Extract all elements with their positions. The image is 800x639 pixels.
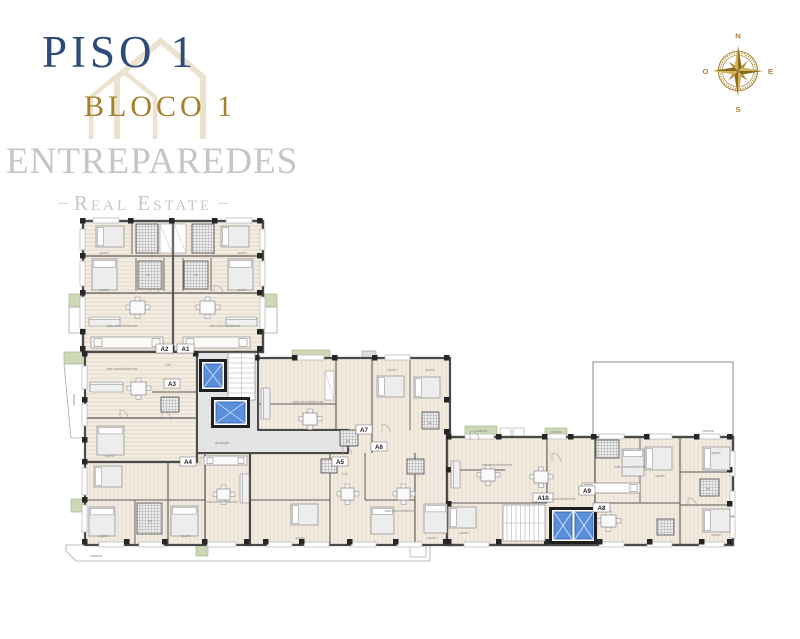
furniture-table [481,469,495,481]
chair [136,395,141,400]
pillar [257,253,263,259]
furniture-table [303,413,317,425]
window [647,434,672,439]
room-label: sala comum/kitchenet [210,324,241,328]
pillar [727,501,733,507]
room-label: hall [166,363,171,367]
bed-pillow [98,228,104,246]
bed-pillow [91,509,114,515]
window [226,218,252,223]
pillar [568,434,574,440]
window [82,366,87,389]
chair [215,305,220,310]
pillar [128,218,134,224]
bed-pillow [624,451,643,457]
window [260,297,265,329]
bed-pillow [426,506,446,512]
chair [401,500,406,505]
pillar [80,329,86,335]
pillar [82,497,88,503]
pillar [496,434,502,440]
pillar [647,539,653,545]
room-label: sala comum/kitchenet [293,400,324,404]
window [599,434,624,439]
room-label: quarto [98,534,107,538]
window [385,355,410,360]
window [545,434,566,439]
pillar [496,539,502,545]
room-label: varanda [475,429,487,433]
chair [146,386,151,391]
bed-pillow [416,379,422,397]
chair [308,425,313,430]
window [260,229,265,250]
pillar [212,218,218,224]
bed-pillow [230,261,252,268]
chair [495,473,500,478]
furniture-table [131,382,146,395]
furniture-sofa [451,461,460,488]
chair [606,527,611,532]
bathroom-tiles [340,430,358,446]
pillar [80,346,86,352]
room-label: quarto [711,533,720,537]
pillar [82,437,88,443]
furniture-table [130,301,145,314]
room-label: varanda [550,430,562,434]
room-label: quarto [655,474,664,478]
window [82,404,87,426]
bed-pillow [705,449,711,469]
pillar [727,539,733,545]
window [599,542,624,547]
room-label: sala comum/kitchenet [545,497,576,501]
pillar [644,434,650,440]
pillar [82,459,88,465]
floorplan-page: PISO 1 BLOCO 1 ENTREPAREDES Real Estate [0,0,800,639]
bed-pillow [379,378,385,396]
room-label: quarto [295,536,304,540]
bathroom-tiles [657,519,674,535]
pillar [80,290,86,296]
chair [548,475,553,480]
room-label: quarto [181,534,190,538]
window [207,542,236,547]
bed-pillow [705,511,711,531]
chair [230,492,235,497]
window [93,218,119,223]
room-label: wc [146,273,150,277]
room-label: wc [428,421,432,425]
room-label: wc [194,273,198,277]
window [82,505,87,532]
chair [616,519,621,524]
room-label: quarto [105,454,114,458]
window [295,355,324,360]
pillar [162,539,168,545]
pillar [169,218,175,224]
window [267,542,292,547]
pillar [727,434,733,440]
furniture-sofa [261,388,270,419]
balcony-green [64,352,85,364]
unit-label-a4: A4 [184,459,192,466]
window [730,517,735,538]
room-label: hall [343,472,348,476]
pillar [444,429,450,435]
furniture-sofa [240,474,249,503]
chair [539,483,544,488]
chair [135,314,140,319]
chair [486,481,491,486]
pillar [263,539,269,545]
ac-unit-box [500,428,511,437]
pillar [542,434,548,440]
room-label: varanda [72,394,76,406]
room-label: wc [148,519,152,523]
room-label: varanda [90,554,102,558]
pillar [257,329,263,335]
bathroom-tiles [192,224,214,253]
pillar [446,434,452,440]
room-label: quarto [237,288,246,292]
room-label: quarto [711,451,720,455]
pillar [244,539,250,545]
ac-unit-box [410,546,426,557]
window [464,542,489,547]
window [304,542,329,547]
window [260,261,265,286]
furniture-table [534,471,548,483]
bed-pillow [451,509,457,527]
pillar [372,355,378,361]
chair [145,305,150,310]
room-label: quarto [459,531,468,535]
room-label: quarto [99,288,108,292]
pillar [257,346,263,352]
pillar [292,355,298,361]
room-label: sala comum/kitchenet [615,465,646,469]
chair [317,417,322,422]
pillar [444,397,450,403]
window [80,229,85,250]
unit-label-a9: A9 [583,488,591,495]
window [697,434,720,439]
balcony-green [264,294,277,307]
window [397,542,422,547]
pillar [444,355,450,361]
room-label: sala comum/kitchenet [107,367,138,371]
room-label: quarto [427,536,436,540]
pillar [124,539,130,545]
pillar [80,253,86,259]
floor-plan: A2 A1 A3 A4 A5 A6 A7 A8 A9 A10 sala comu… [0,0,800,639]
pillar [82,351,88,357]
room-label: sala comum/kitchenet [107,324,138,328]
unit-label-a1: A1 [182,346,190,353]
room-label: quarto [99,251,108,255]
pillar [597,539,603,545]
furniture-table [601,515,616,527]
room-label: sala comum/kitchenet [385,509,416,513]
bed-pillow [647,449,653,469]
chair [205,314,210,319]
furniture-sofa [90,382,123,392]
room-label: varanda [702,429,714,433]
chair [345,500,350,505]
unit-label-a6: A6 [375,444,383,451]
window [139,542,164,547]
bathroom-tiles [407,459,424,474]
room-label: sala comum/kitchenet [482,463,513,467]
pillar [80,218,86,224]
bathroom-tiles [161,397,179,412]
window [80,261,85,286]
bed-pillow [173,508,197,515]
chair [410,492,415,497]
window [82,468,87,495]
bed-pillow [223,228,229,246]
furniture-table [217,489,230,500]
pillar [202,539,208,545]
pillar [257,218,263,224]
pillar [699,539,705,545]
balcony [264,307,277,333]
bed-pillow [96,468,102,486]
pillar [257,290,263,296]
pillar [694,434,700,440]
bathroom-tiles [596,440,619,458]
room-label: quarto [387,368,396,372]
unit-label-a7: A7 [360,427,368,434]
furniture-table [200,301,215,314]
pillar [82,397,88,403]
bed-pillow [293,506,299,524]
bed-pillow [94,261,116,268]
window [80,297,85,329]
pillar [446,467,452,473]
room-label: circulação [215,441,230,445]
pillar [82,539,88,545]
unit-label-a2: A2 [161,346,169,353]
pillar [393,539,399,545]
room-label: quarto [425,368,434,372]
room-label: wc [346,439,350,443]
chair [354,492,359,497]
unit-label-a5: A5 [336,459,344,466]
pillar [591,434,597,440]
room-label: quarto [237,251,246,255]
furniture-table [397,488,410,500]
unit-label-a3: A3 [168,381,176,388]
room-label: wc [706,487,710,491]
pillar [446,539,452,545]
furniture-table [341,488,354,500]
bathroom-tiles [138,261,162,289]
pillar [332,355,338,361]
ac-unit-box [513,428,524,437]
terrace-outline [593,362,733,437]
bed-pillow [99,428,123,434]
pillar [347,539,353,545]
window [465,434,494,439]
bathroom-tiles [136,224,158,253]
window [351,542,376,547]
window [99,542,124,547]
room-label: sala comum/kitchenet [207,500,238,504]
unit-label-a8: A8 [598,505,606,512]
balcony [66,545,430,561]
